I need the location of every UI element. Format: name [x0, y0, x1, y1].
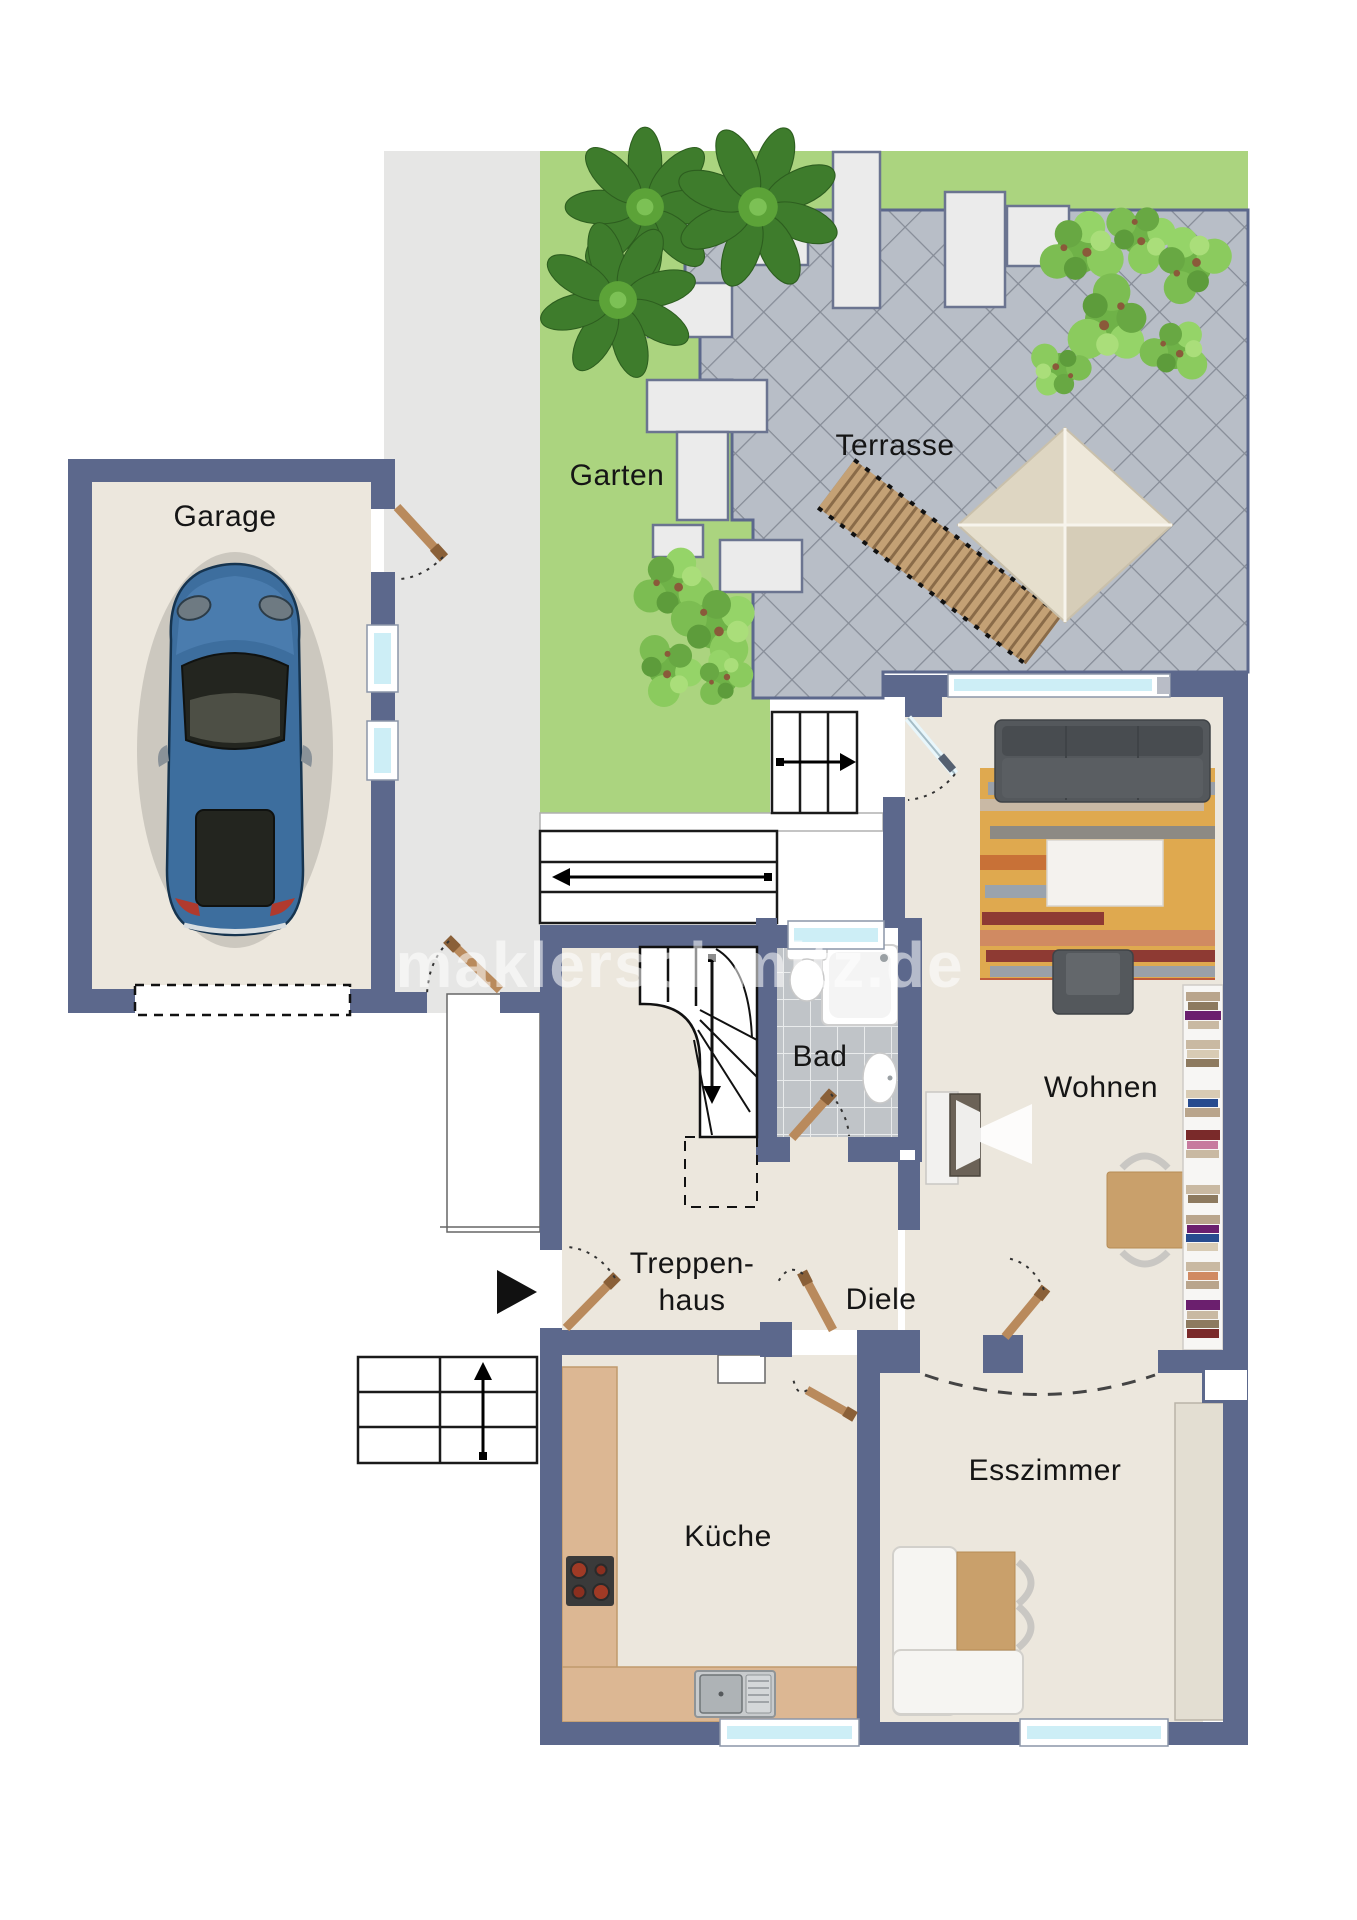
diningroom-window — [1020, 1719, 1168, 1746]
car — [137, 552, 333, 948]
entry-arrow-icon — [497, 1270, 537, 1314]
dining-table — [957, 1552, 1015, 1650]
kitchen-window — [720, 1719, 859, 1746]
floorplan-drawing — [0, 0, 1357, 1920]
corner-window — [1205, 1370, 1247, 1400]
bathroom-sink — [863, 1053, 897, 1103]
cooktop — [566, 1556, 614, 1606]
garden-stairs-lower — [540, 831, 777, 923]
sofa — [995, 720, 1210, 802]
garden-stairs-upper — [772, 712, 857, 813]
livingroom-window — [948, 674, 1170, 697]
room-label-bad: Bad — [793, 1040, 848, 1074]
garage-window — [367, 625, 398, 692]
garage-window — [367, 721, 398, 780]
room-label-diele: Diele — [846, 1283, 917, 1317]
treppenhaus-line1: Treppen- — [630, 1245, 755, 1282]
room-label-treppenhaus: Treppen- haus — [630, 1245, 755, 1319]
room-label-esszimmer: Esszimmer — [969, 1454, 1122, 1488]
area-label-terrasse: Terrasse — [835, 429, 954, 463]
garage-door — [135, 985, 350, 1015]
street-stairs — [358, 1357, 537, 1463]
entry-walkway — [440, 994, 540, 1232]
room-label-kueche: Küche — [684, 1520, 772, 1554]
room-label-garage: Garage — [173, 500, 276, 534]
dining-cabinet — [1175, 1403, 1225, 1720]
coffee-table — [1047, 840, 1163, 906]
kitchen-sink — [695, 1671, 775, 1717]
floorplan-canvas: Garage Garten Terrasse Wohnen Bad Treppe… — [0, 0, 1357, 1920]
shower — [822, 945, 898, 1025]
treppenhaus-line2: haus — [630, 1282, 755, 1319]
arch-floor — [898, 1330, 1158, 1375]
area-label-garten: Garten — [570, 459, 665, 493]
armchair — [1053, 950, 1133, 1014]
side-table-chairs — [1107, 1156, 1185, 1264]
side-path — [384, 151, 540, 1013]
bookshelf — [1183, 985, 1223, 1350]
wall-duct — [900, 1150, 915, 1160]
bathroom-window — [788, 921, 884, 949]
kitchen-niche — [718, 1355, 765, 1383]
retaining-edge — [540, 813, 883, 831]
room-label-wohnen: Wohnen — [1044, 1071, 1158, 1105]
